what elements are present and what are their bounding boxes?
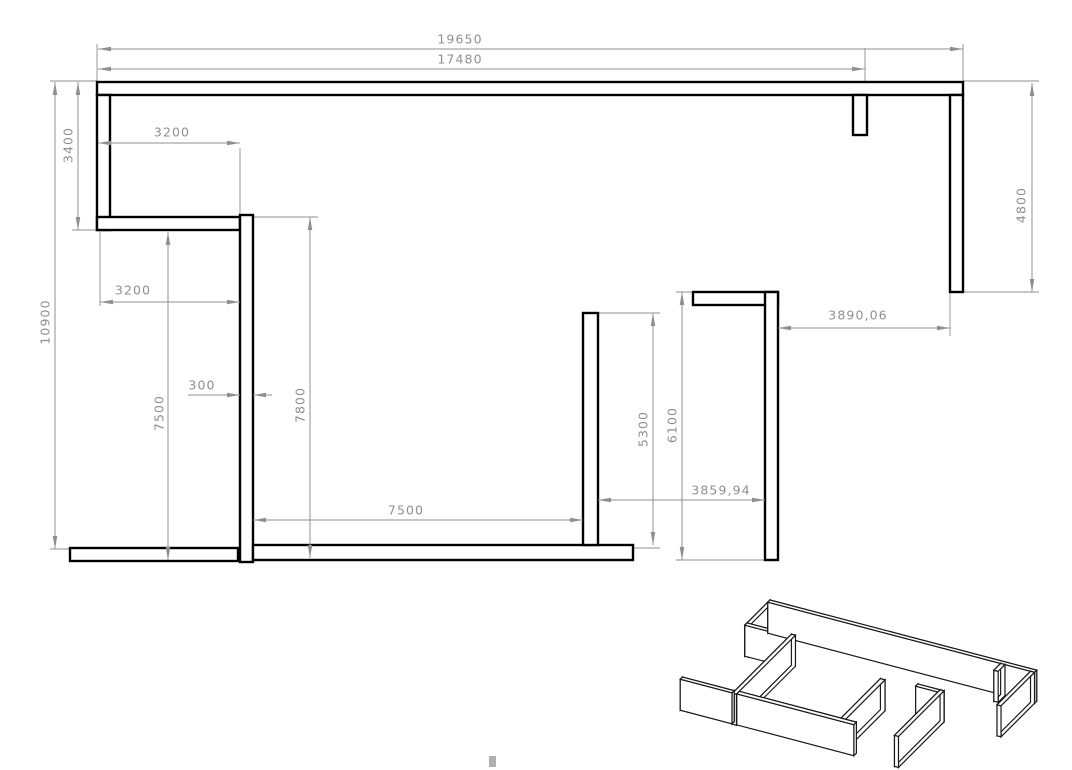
misc-layer bbox=[489, 756, 496, 767]
dimension-label: 4800 bbox=[1014, 187, 1029, 223]
wall-l-wall-vertical bbox=[765, 292, 778, 560]
dimension-7500: 7500 bbox=[253, 503, 583, 523]
dimension-arrow bbox=[570, 518, 583, 523]
dimension-arrow bbox=[651, 532, 656, 545]
iso-face-south bbox=[894, 735, 898, 767]
dimension-arrow bbox=[1030, 83, 1035, 96]
cad-drawing-page: 19650174803200320030075003859,943890,061… bbox=[0, 0, 1072, 770]
dimension-label: 7500 bbox=[388, 503, 424, 518]
dimension-arrow bbox=[651, 313, 656, 326]
dimension-19650: 19650 bbox=[98, 32, 963, 52]
dimension-arrow bbox=[76, 217, 81, 230]
dimension-3890,06: 3890,06 bbox=[778, 308, 950, 331]
dimension-label: 7500 bbox=[152, 395, 167, 431]
dimension-arrow bbox=[53, 536, 58, 549]
wall-top-wall-stub bbox=[853, 95, 867, 135]
dimension-arrow bbox=[308, 217, 313, 230]
dimension-arrow bbox=[778, 326, 791, 331]
dimension-3200: 3200 bbox=[100, 283, 240, 305]
dimension-label: 17480 bbox=[437, 52, 482, 67]
dimension-arrow bbox=[100, 300, 113, 305]
dimension-label: 6100 bbox=[665, 407, 680, 443]
dimension-label: 10900 bbox=[38, 299, 53, 344]
dimension-arrow bbox=[227, 393, 240, 398]
dimension-4800: 4800 bbox=[1014, 83, 1035, 292]
wall-upper-left-partition bbox=[97, 217, 240, 230]
dimension-arrow bbox=[253, 518, 266, 523]
iso-wall-bottom-left-wall bbox=[680, 677, 734, 724]
dimension-arrow bbox=[598, 498, 611, 503]
dimension-7800: 7800 bbox=[293, 217, 313, 558]
dimension-arrow bbox=[53, 82, 58, 95]
dimension-arrow bbox=[680, 547, 685, 560]
dimension-3200: 3200 bbox=[98, 125, 240, 146]
dimension-arrow bbox=[166, 232, 171, 245]
dimension-label: 300 bbox=[188, 378, 215, 393]
dimension-label: 7800 bbox=[293, 387, 308, 423]
isometric-view bbox=[680, 600, 1036, 767]
cad-drawing: 19650174803200320030075003859,943890,061… bbox=[0, 0, 1072, 770]
dimension-arrow bbox=[950, 47, 963, 52]
dimension-label: 3890,06 bbox=[828, 308, 887, 323]
dimension-label: 3859,94 bbox=[691, 483, 750, 498]
dimension-arrow bbox=[852, 67, 865, 72]
dimension-label: 5300 bbox=[636, 411, 651, 447]
dimension-arrow bbox=[76, 82, 81, 95]
dimension-arrow bbox=[227, 300, 240, 305]
dimension-label: 3200 bbox=[115, 283, 151, 298]
wall-top-wall bbox=[97, 82, 963, 95]
page-artifact bbox=[489, 756, 496, 767]
wall-middle-partition bbox=[583, 313, 598, 545]
dimension-arrow bbox=[1030, 279, 1035, 292]
dimension-6100: 6100 bbox=[665, 292, 685, 560]
dimension-label: 19650 bbox=[437, 32, 482, 47]
dimension-arrow bbox=[752, 498, 765, 503]
dimension-arrow bbox=[680, 292, 685, 305]
dimension-arrow bbox=[253, 393, 266, 398]
iso-face-south bbox=[994, 670, 998, 702]
dimension-label: 3200 bbox=[154, 125, 190, 140]
dimension-arrow bbox=[98, 47, 111, 52]
iso-wall-top-wall-stub bbox=[994, 663, 1005, 702]
dimension-arrow bbox=[227, 141, 240, 146]
dimension-arrow bbox=[98, 67, 111, 72]
iso-wall-bottom-middle-wall bbox=[737, 691, 857, 755]
dimension-label: 3400 bbox=[61, 127, 76, 163]
dimension-5300: 5300 bbox=[636, 313, 656, 545]
dimension-17480: 17480 bbox=[98, 52, 865, 72]
dimensions-layer: 19650174803200320030075003859,943890,061… bbox=[38, 32, 1035, 561]
wall-interior-long-partition bbox=[240, 215, 253, 562]
dimension-3400: 3400 bbox=[61, 82, 81, 230]
iso-face-south bbox=[737, 694, 854, 756]
dimension-10900: 10900 bbox=[38, 82, 58, 549]
dimension-300: 300 bbox=[188, 378, 272, 398]
iso-face-south bbox=[997, 705, 1001, 737]
wall-right-wall bbox=[950, 95, 963, 292]
wall-left-wall bbox=[97, 95, 110, 230]
wall-bottom-left-wall bbox=[70, 548, 238, 561]
dimension-7500: 7500 bbox=[152, 232, 171, 560]
dimension-arrow bbox=[937, 326, 950, 331]
